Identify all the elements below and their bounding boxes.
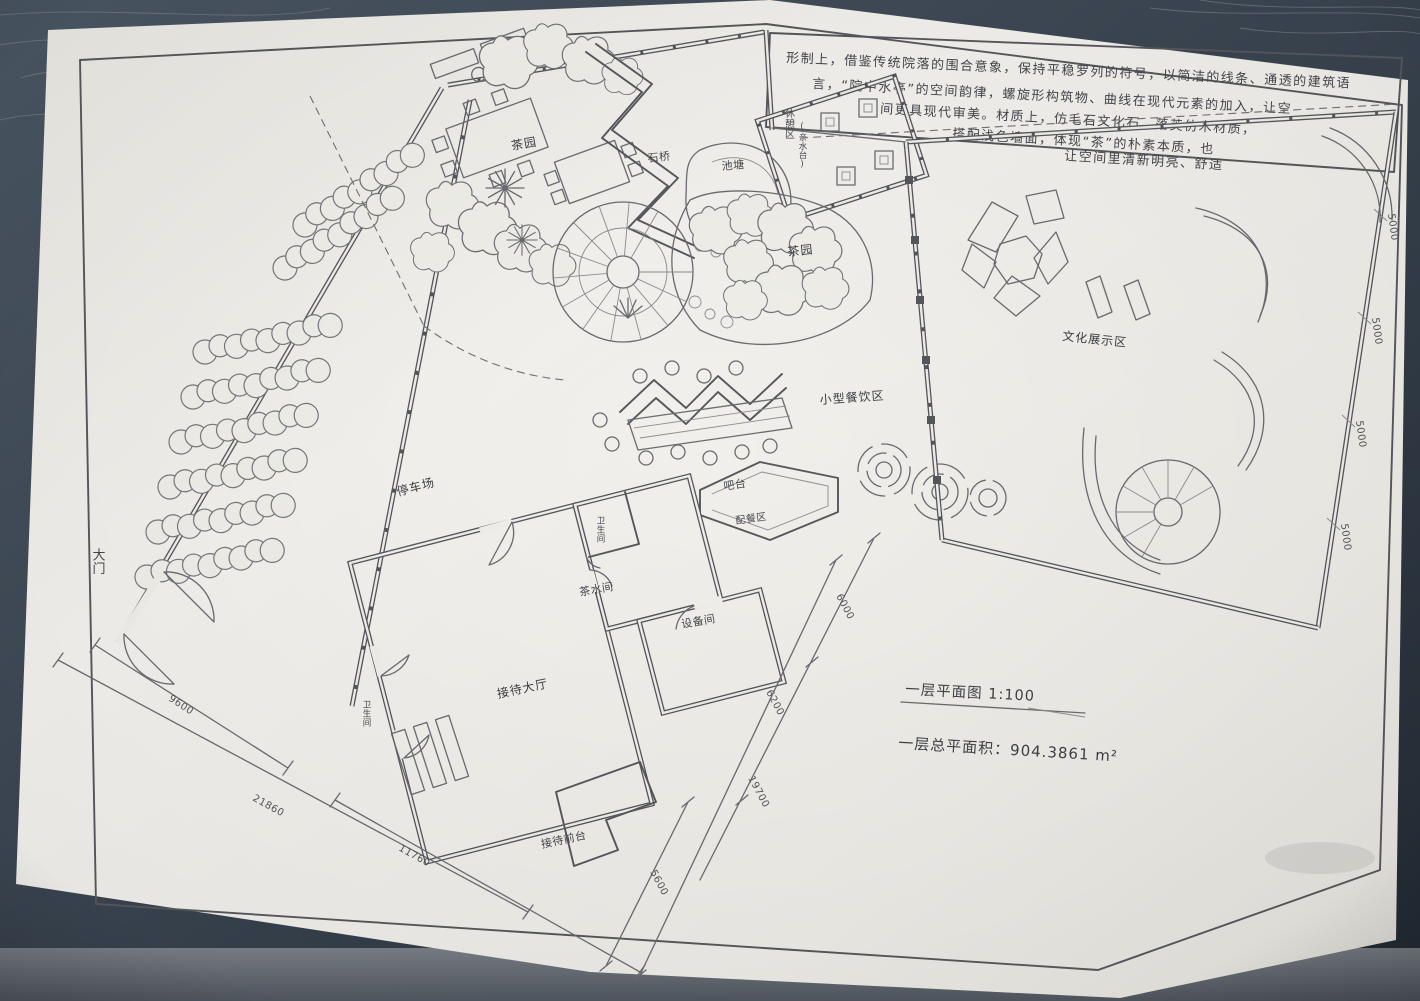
plan-canvas: 形制上，借鉴传统院落的围合意象，保持平稳罗列的符号，以简洁的线条、通透的建筑语 … — [0, 0, 1420, 1001]
photo-vignette — [0, 0, 1420, 1001]
floor-plan-photo: 形制上，借鉴传统院落的围合意象，保持平稳罗列的符号，以简洁的线条、通透的建筑语 … — [0, 0, 1420, 1001]
